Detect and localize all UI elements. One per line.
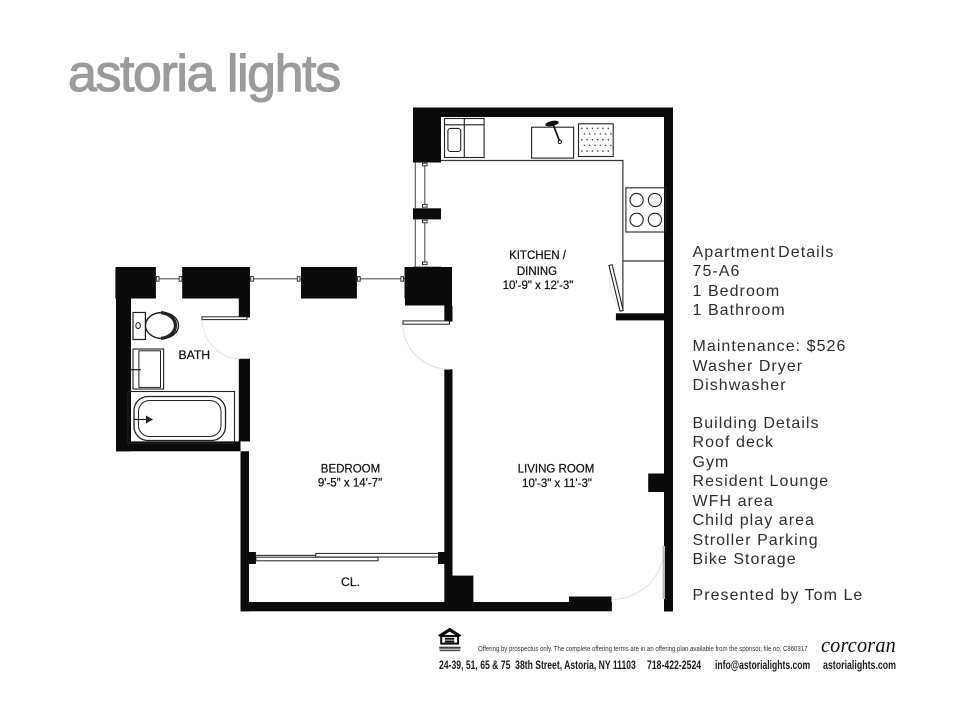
svg-text:9'-5" x 14'-7": 9'-5" x 14'-7": [318, 478, 382, 490]
svg-text:DINING: DINING: [517, 266, 557, 278]
svg-text:CL.: CL.: [341, 575, 360, 589]
svg-text:BATH: BATH: [178, 348, 210, 362]
svg-text:KITCHEN /: KITCHEN /: [509, 250, 567, 262]
svg-text:LIVING ROOM: LIVING ROOM: [518, 464, 595, 476]
svg-text:10'-3" x 11'-3": 10'-3" x 11'-3": [522, 478, 592, 490]
svg-text:BEDROOM: BEDROOM: [321, 464, 380, 476]
svg-text:10'-9" x 12'-3": 10'-9" x 12'-3": [503, 280, 574, 292]
